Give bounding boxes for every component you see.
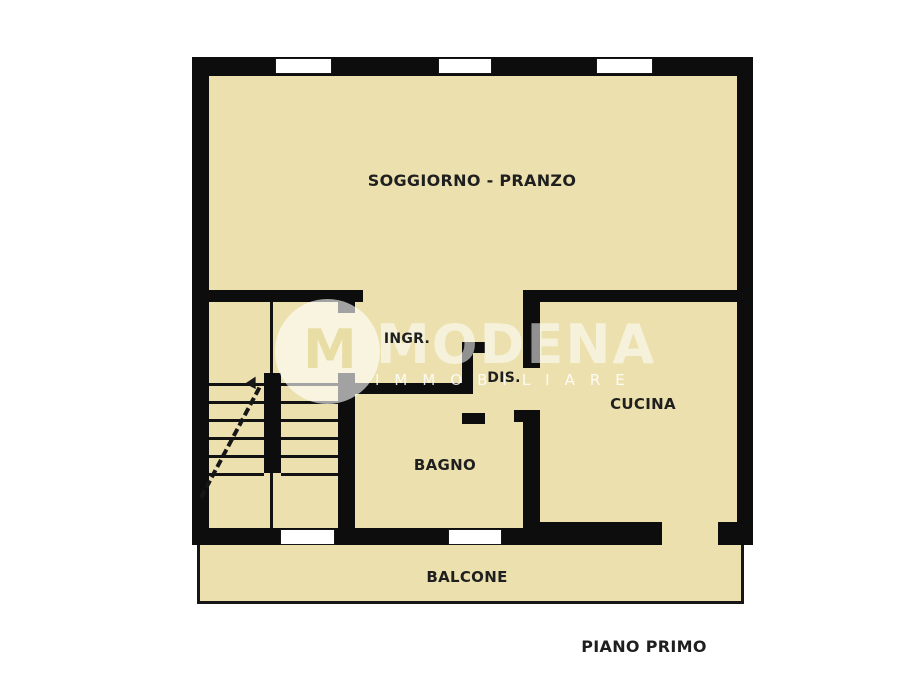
wall-soggiorno-left-segment [192,290,363,302]
room-label-ingresso: INGR. [384,331,430,347]
window-top-2 [438,58,492,74]
wall-cucina-left-lower [523,410,540,528]
wall-stair-right [338,373,355,528]
room-label-balcone: BALCONE [426,568,507,586]
wall-cucina-door-stub [514,410,540,422]
stair-tread [281,419,338,422]
room-label-soggiorno: SOGGIORNO - PRANZO [368,171,576,190]
stair-tread [209,455,264,458]
window-top-3 [596,58,653,74]
stair-tread [281,473,338,476]
floor-title: PIANO PRIMO [581,637,706,656]
stair-tread [209,473,264,476]
wall-dis-west [462,342,473,394]
stair-tread [209,437,264,440]
wall-cucina-left-upper [523,302,540,368]
window-bottom-stairs [280,529,335,545]
wall-bottom-kitchen-right [718,522,753,545]
wall-dis-stub-top [473,342,485,353]
stair-tread [209,401,264,404]
wall-bottom-kitchen [523,522,662,545]
stair-tread [281,383,338,386]
wall-bagno-top [338,383,473,394]
kitchen-balcony-opening [662,522,718,547]
window-bottom-bagno [448,529,502,545]
stair-tread [281,401,338,404]
wall-dis-stub-bottom [462,413,485,424]
stair-tread [281,437,338,440]
floor-plan: M MODENA IMMOBILIARE SOGGIORNO - PRANZO … [0,0,921,698]
staircase [209,302,338,528]
room-label-disimpegno: DIS. [487,370,520,386]
wall-stub-entry-door [338,302,355,313]
room-label-bagno: BAGNO [414,456,476,474]
stair-tread [281,455,338,458]
stair-tread [209,419,264,422]
stair-divider-thick [264,373,281,473]
wall-soggiorno-right-segment [523,290,753,302]
wall-bottom-left [192,528,572,545]
room-label-cucina: CUCINA [610,395,676,413]
window-top-1 [275,58,332,74]
